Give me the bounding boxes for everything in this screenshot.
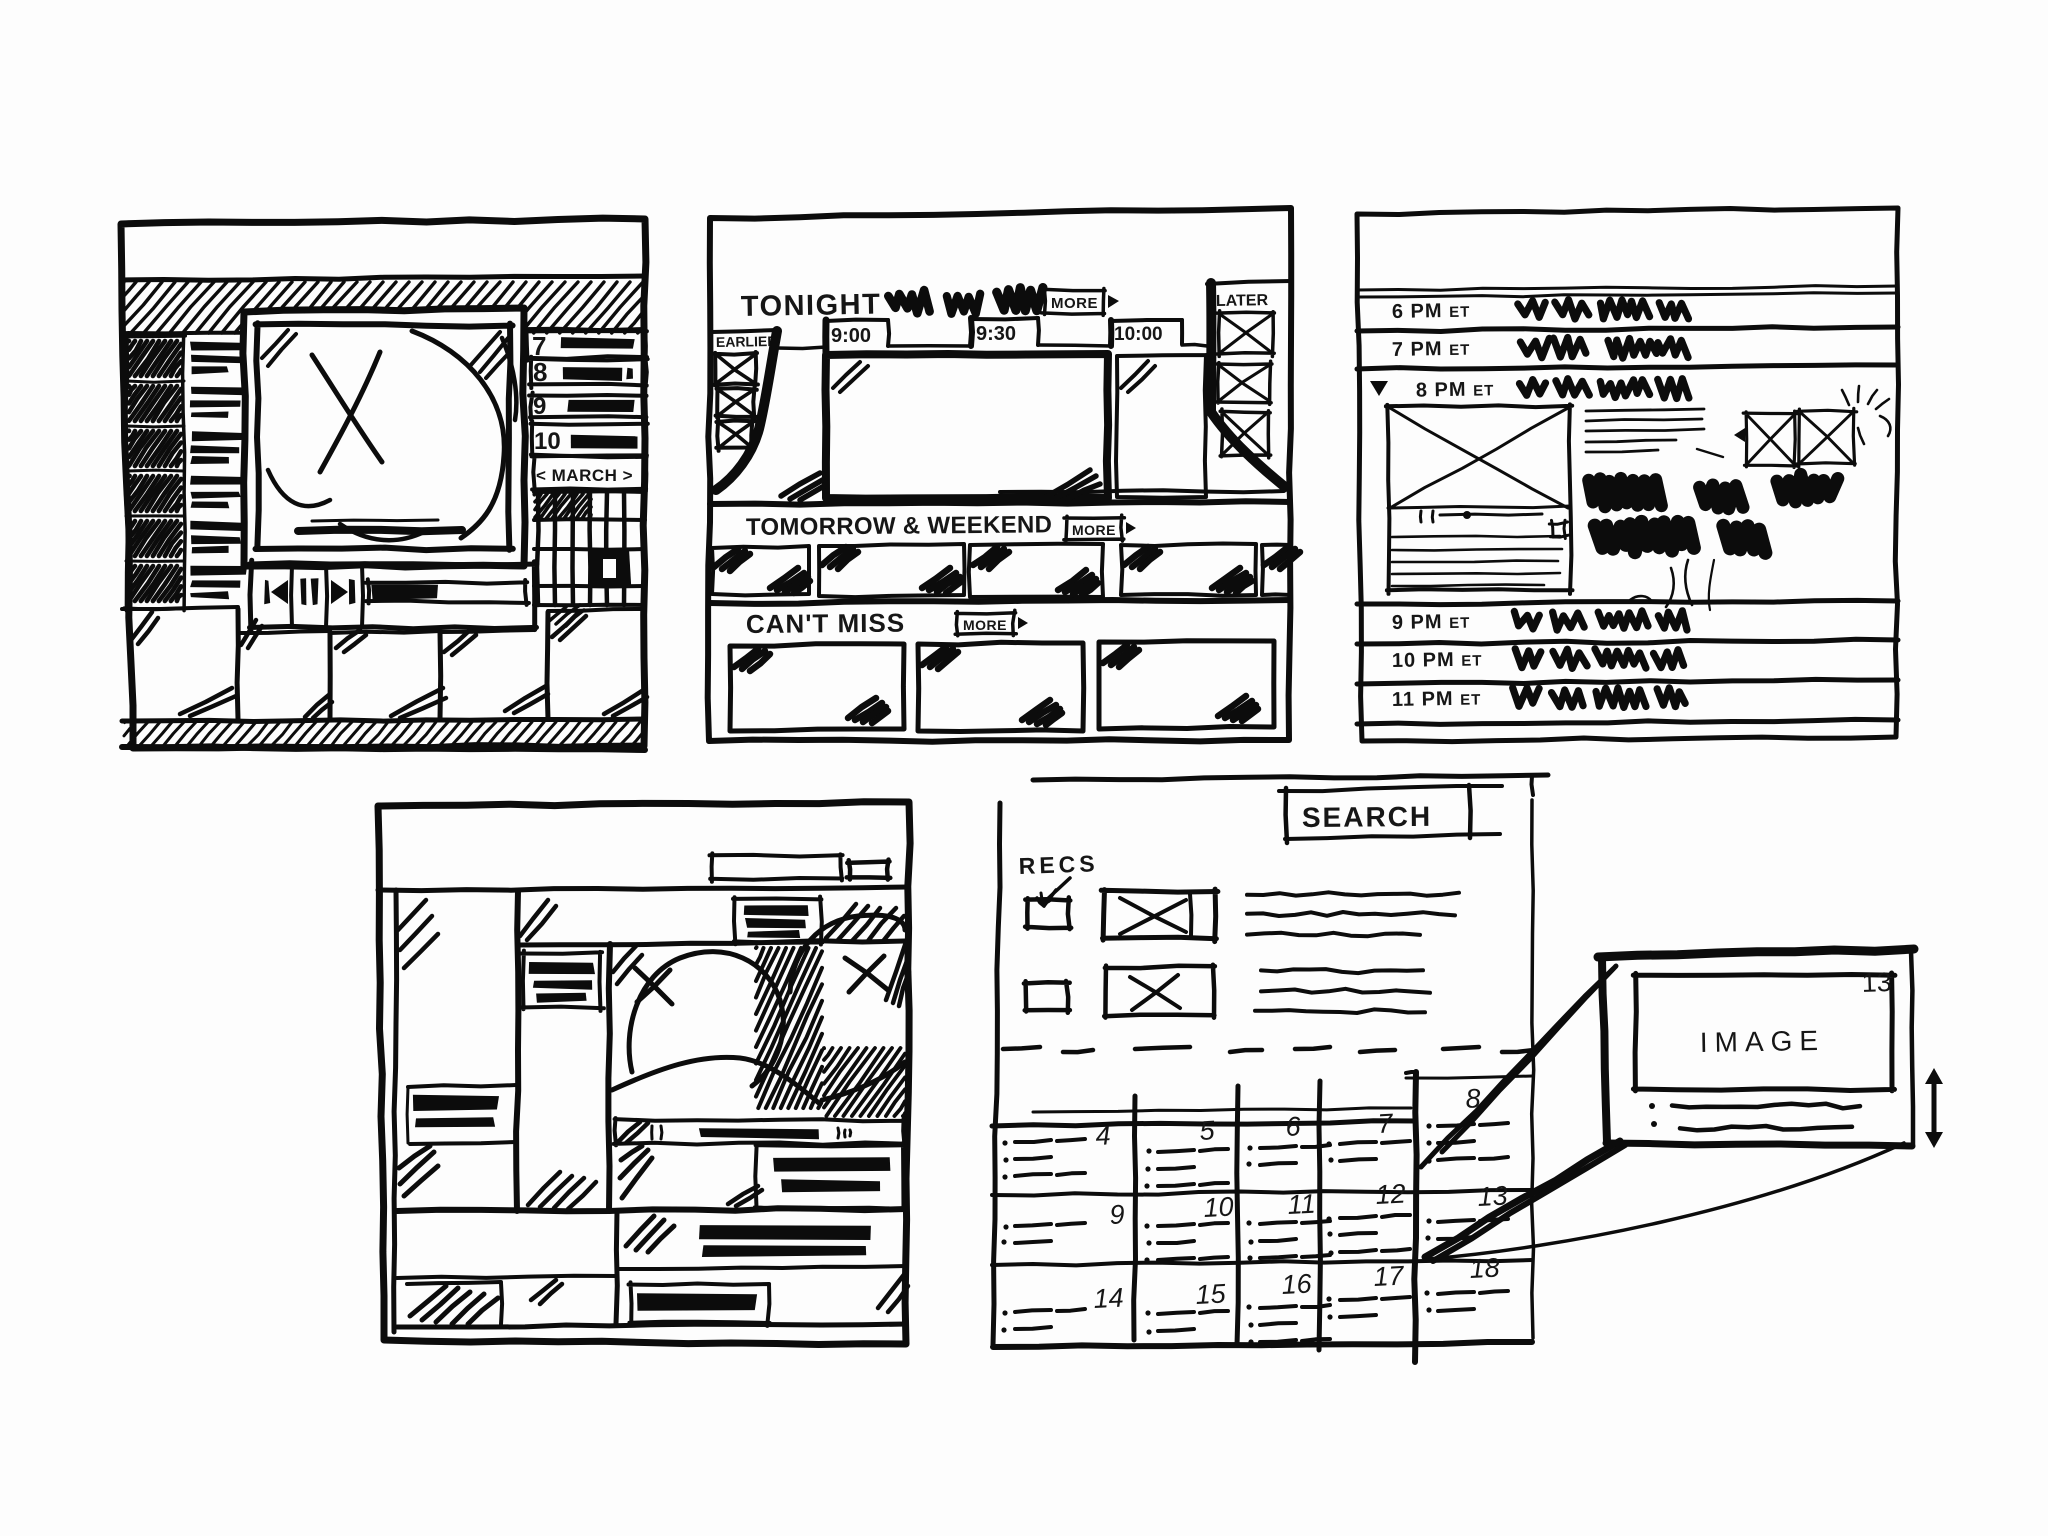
- svg-text:6: 6: [1285, 1111, 1303, 1142]
- svg-text:9: 9: [1109, 1199, 1126, 1230]
- svg-text:11 PM ET: 11 PM ET: [1392, 687, 1482, 711]
- svg-text:10: 10: [1203, 1191, 1235, 1223]
- svg-text:16: 16: [1281, 1268, 1314, 1300]
- svg-text:5: 5: [1199, 1115, 1217, 1146]
- svg-text:< MARCH >: < MARCH >: [536, 466, 633, 485]
- svg-text:7 PM ET: 7 PM ET: [1392, 338, 1471, 361]
- svg-text:MORE: MORE: [1072, 522, 1116, 538]
- svg-text:12: 12: [1375, 1178, 1407, 1210]
- svg-text:SEARCH: SEARCH: [1302, 801, 1432, 833]
- svg-text:7: 7: [1377, 1108, 1395, 1139]
- svg-text:10:00: 10:00: [1114, 324, 1163, 345]
- svg-text:MORE: MORE: [1051, 295, 1098, 312]
- svg-text:8: 8: [533, 357, 547, 387]
- svg-text:TOMORROW & WEEKEND: TOMORROW & WEEKEND: [746, 511, 1053, 541]
- svg-text:LATER: LATER: [1216, 292, 1269, 310]
- svg-text:RECS: RECS: [1018, 850, 1099, 879]
- svg-text:9:30: 9:30: [976, 323, 1016, 345]
- svg-text:MORE: MORE: [963, 617, 1007, 633]
- svg-text:IMAGE: IMAGE: [1700, 1025, 1826, 1058]
- svg-text:14: 14: [1093, 1282, 1125, 1314]
- svg-text:CAN'T MISS: CAN'T MISS: [746, 608, 905, 639]
- svg-text:13: 13: [1861, 967, 1892, 998]
- svg-text:9 PM ET: 9 PM ET: [1392, 611, 1471, 634]
- svg-text:9:00: 9:00: [831, 325, 871, 347]
- svg-text:10: 10: [534, 428, 561, 455]
- svg-text:17: 17: [1373, 1260, 1406, 1292]
- svg-text:6 PM ET: 6 PM ET: [1392, 300, 1471, 323]
- svg-text:8 PM ET: 8 PM ET: [1416, 378, 1495, 401]
- svg-text:10 PM ET: 10 PM ET: [1392, 648, 1483, 672]
- svg-text:9: 9: [533, 393, 546, 420]
- svg-text:11: 11: [1287, 1189, 1317, 1220]
- svg-text:EARLIER: EARLIER: [716, 333, 778, 350]
- svg-text:18: 18: [1469, 1252, 1501, 1284]
- svg-text:15: 15: [1195, 1278, 1228, 1310]
- svg-text:4: 4: [1095, 1120, 1112, 1151]
